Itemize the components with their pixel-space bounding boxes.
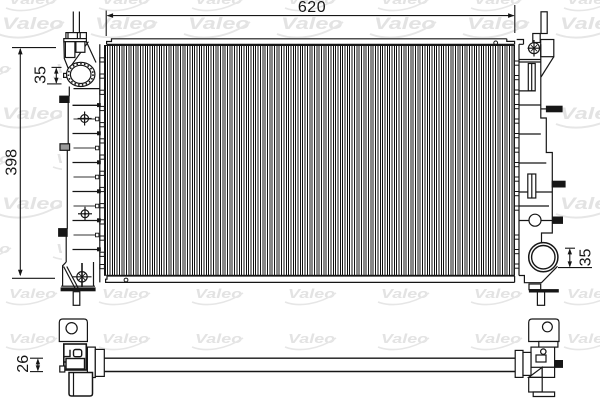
svg-text:620: 620 xyxy=(298,0,326,16)
svg-text:398: 398 xyxy=(4,149,21,176)
svg-text:35: 35 xyxy=(578,249,595,267)
svg-text:35: 35 xyxy=(32,66,49,84)
svg-text:26: 26 xyxy=(15,355,32,373)
